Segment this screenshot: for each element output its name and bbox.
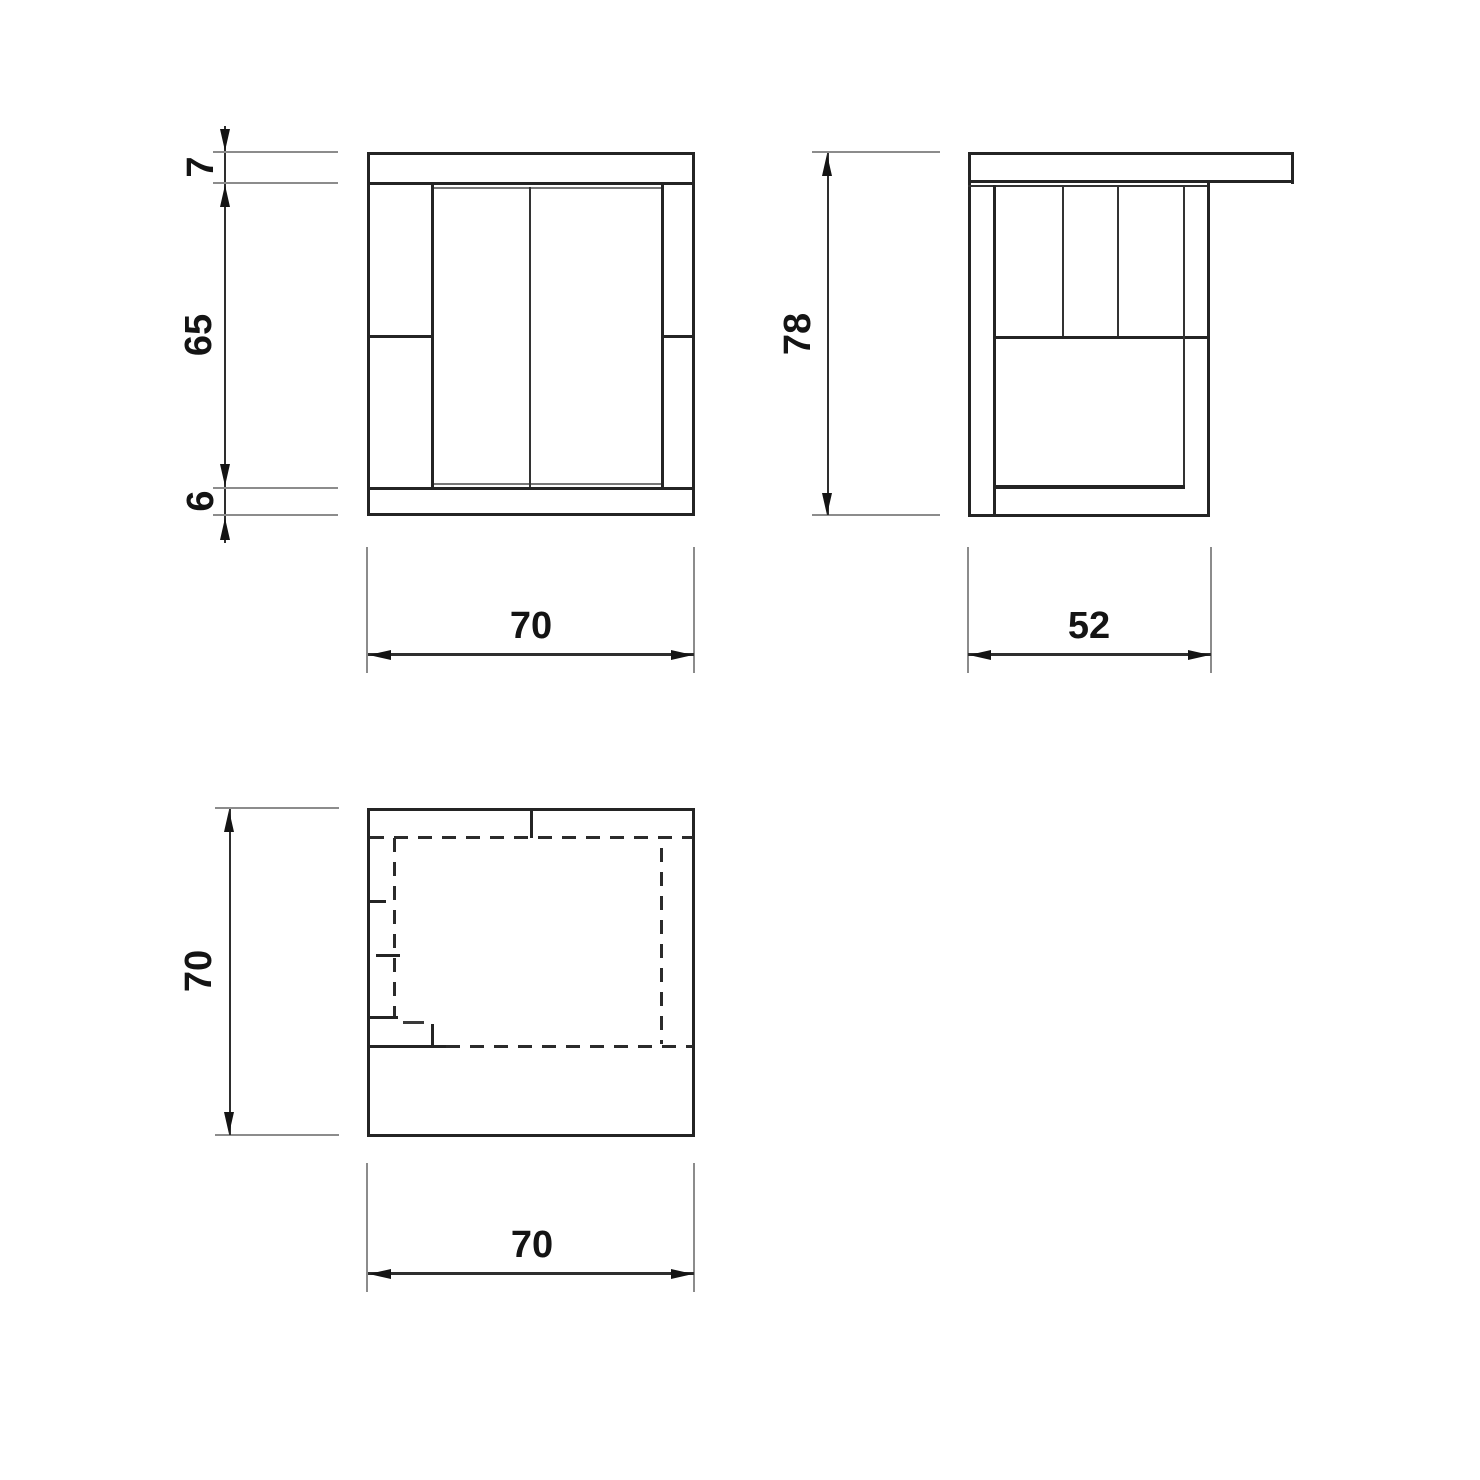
- arrowhead: [224, 1112, 234, 1134]
- front-bottom-edge: [367, 513, 695, 516]
- dimension-label-side-height: 78: [778, 294, 818, 374]
- plan-left-tick-1: [367, 900, 386, 903]
- front-plinth-top: [367, 487, 695, 490]
- front-center-divider: [529, 187, 531, 487]
- plan-corner-tick: [367, 1016, 398, 1019]
- side-slab-bottom: [968, 180, 1294, 183]
- plan-hidden-back-line: [370, 836, 693, 839]
- extension-line: [215, 807, 339, 809]
- extension-line: [213, 514, 338, 516]
- dimension-line: [368, 653, 694, 656]
- plan-bottom-edge: [367, 1134, 695, 1137]
- extension-line: [213, 487, 338, 489]
- dimension-label-base-height: 6: [181, 461, 221, 541]
- dimension-line: [368, 1272, 694, 1275]
- extension-line: [812, 151, 940, 153]
- arrowhead: [369, 1269, 391, 1279]
- dimension-label-plan-depth: 70: [179, 931, 219, 1011]
- dimension-line: [968, 653, 1211, 656]
- arrowhead: [822, 154, 832, 176]
- dimension-line: [229, 809, 231, 1135]
- arrowhead: [671, 650, 693, 660]
- arrowhead: [822, 493, 832, 515]
- plan-right-edge: [692, 808, 695, 1137]
- plan-front-edge-solid: [367, 1045, 446, 1048]
- arrowhead: [969, 650, 991, 660]
- side-upper-divider-1: [1062, 186, 1064, 338]
- arrowhead: [220, 464, 230, 486]
- plan-front-edge-hidden: [446, 1045, 693, 1048]
- front-left-edge: [367, 152, 370, 516]
- side-upper-divider-2: [1117, 186, 1119, 338]
- side-mid-shelf-line: [993, 336, 1210, 339]
- dimension-line: [827, 153, 829, 515]
- side-left-edge: [968, 152, 971, 517]
- arrowhead: [220, 129, 230, 151]
- arrowhead: [369, 650, 391, 660]
- plan-vertical-tick: [431, 1024, 434, 1046]
- arrowhead: [671, 1269, 693, 1279]
- extension-line: [213, 182, 338, 184]
- dimension-label-side-depth: 52: [1049, 606, 1129, 646]
- plan-hidden-right-line: [660, 848, 663, 1044]
- arrowhead: [1188, 650, 1210, 660]
- side-right-inner-line: [1183, 186, 1185, 487]
- plan-center-tick: [530, 808, 533, 838]
- plan-short-dash: [403, 1021, 424, 1024]
- dimension-label-front-width: 70: [491, 606, 571, 646]
- side-left-panel-line: [993, 185, 996, 514]
- extension-line: [213, 151, 338, 153]
- extension-line: [215, 1134, 339, 1136]
- front-right-shelf-line: [661, 335, 695, 338]
- plan-hidden-left-line: [393, 838, 396, 1018]
- side-bottom-shelf-line: [993, 485, 1185, 489]
- dimension-label-body-height: 65: [179, 295, 219, 375]
- dimension-label-top-thickness: 7: [181, 127, 221, 207]
- side-bottom-edge: [968, 514, 1210, 517]
- plan-left-edge: [367, 808, 370, 1137]
- front-right-edge: [692, 152, 695, 516]
- front-inner-top-line: [433, 187, 662, 189]
- side-right-edge: [1207, 180, 1210, 517]
- front-inner-bottom-line: [433, 483, 662, 485]
- side-carcass-top: [968, 185, 1210, 187]
- arrowhead: [220, 518, 230, 540]
- front-left-shelf-line: [367, 335, 434, 338]
- technical-drawing: 7 65 6 70 78 52 70: [0, 0, 1480, 1480]
- front-top-edge: [367, 152, 695, 155]
- side-slab-top: [968, 152, 1294, 155]
- dimension-label-plan-width: 70: [492, 1225, 572, 1265]
- plan-left-tick-2: [376, 954, 400, 957]
- arrowhead: [224, 810, 234, 832]
- arrowhead: [220, 185, 230, 207]
- front-tabletop-bottom: [367, 182, 695, 185]
